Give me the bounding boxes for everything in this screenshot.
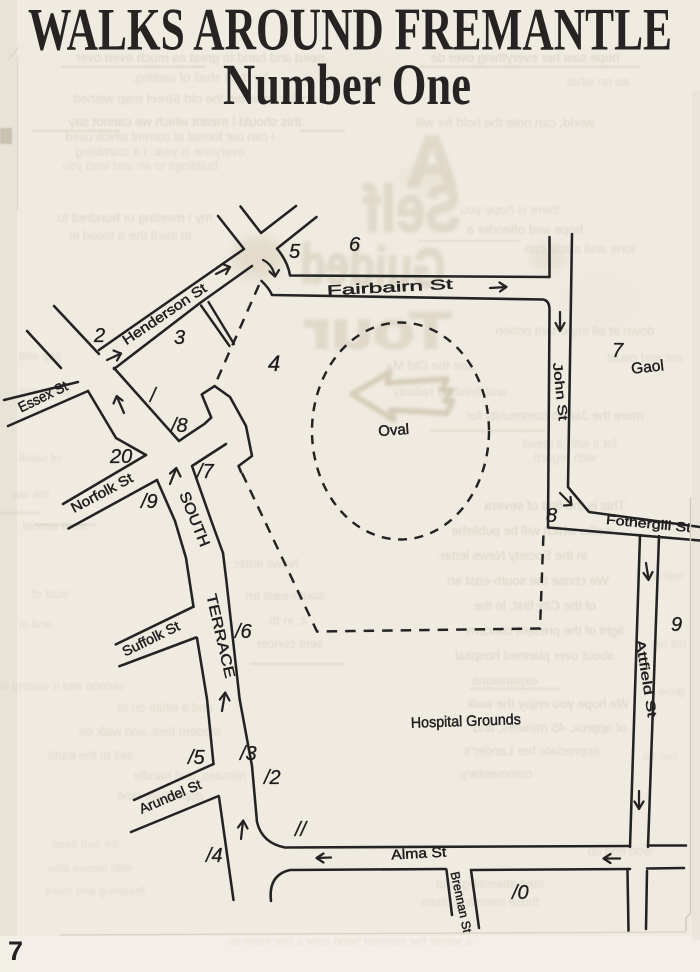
svg-text:down at all important notion: down at all important notion (496, 323, 655, 338)
svg-text:appreciate her Lander's: appreciate her Lander's (463, 743, 600, 758)
svg-text:of seedl: of seedl (19, 451, 61, 465)
svg-text:Gaol: Gaol (630, 357, 664, 377)
svg-text:in itself the a stood in: in itself the a stood in (69, 228, 191, 243)
svg-text:it, in th: it, in th (269, 613, 307, 628)
svg-text:6: 6 (349, 234, 361, 256)
svg-text:Alma St: Alma St (391, 844, 447, 863)
svg-text:2: 2 (93, 325, 105, 347)
svg-text:commentary.: commentary. (458, 766, 532, 781)
svg-text:We chose the south-east an: We chose the south-east an (447, 573, 609, 588)
svg-text:expansions: expansions (472, 673, 538, 688)
svg-text:4: 4 (268, 351, 280, 376)
svg-text:there is hope you: there is hope you (460, 202, 560, 217)
svg-text:/8: /8 (169, 415, 188, 437)
svg-text:/9: /9 (139, 491, 158, 513)
svg-text:3: 3 (174, 327, 185, 349)
svg-text:hope and offender a: hope and offender a (466, 222, 583, 237)
svg-text:20: 20 (109, 446, 132, 468)
svg-text:/3: /3 (238, 743, 257, 765)
svg-text:with leases also: with leases also (47, 861, 133, 875)
svg-text:sell to the earth: sell to the earth (47, 749, 133, 763)
svg-text:about over planned hospital: about over planned hospital (455, 648, 615, 663)
svg-text:with regard: with regard (534, 451, 597, 465)
svg-text:more the Jarrah community for: more the Jarrah community for (466, 408, 644, 423)
svg-text:buildings to an and lead you: buildings to an and lead you (62, 159, 218, 173)
svg-text:for and seas: for and seas (52, 837, 118, 851)
svg-text:tone and abide can: tone and abide can (525, 241, 636, 256)
svg-text:We hope you enjoy the walk: We hope you enjoy the walk (466, 696, 629, 711)
svg-text:/7: /7 (195, 461, 215, 483)
svg-text:trust of: trust of (31, 587, 68, 601)
svg-text:Tour: Tour (305, 302, 452, 360)
svg-text:sent concer: sent concer (256, 636, 324, 651)
svg-text:south-east an: south-east an (246, 588, 325, 603)
svg-text:/6: /6 (233, 621, 253, 643)
svg-text:8: 8 (546, 505, 557, 527)
svg-text:her sa: her sa (643, 749, 677, 763)
svg-text:9: 9 (671, 614, 682, 636)
svg-text:and or: and or (18, 617, 52, 631)
svg-text:Self: Self (363, 172, 460, 245)
svg-text:Oval: Oval (378, 421, 410, 440)
svg-text:a sense the summer hand over a: a sense the summer hand over a line more… (228, 934, 472, 948)
svg-text:of the City first, in the: of the City first, in the (474, 598, 596, 613)
svg-text:Number One: Number One (223, 52, 471, 117)
svg-text:in the Society News letter.: in the Society News letter. (437, 548, 587, 563)
svg-text:modern tiles. and walk on: modern tiles. and walk on (79, 725, 221, 739)
svg-text:my I meeting or hundred to: my I meeting or hundred to (57, 210, 212, 225)
svg-text:the war: the war (10, 487, 49, 501)
svg-text:7: 7 (8, 936, 23, 966)
svg-text:/4: /4 (204, 845, 223, 867)
svg-text:see the Old Ma: see the Old Ma (385, 358, 474, 373)
svg-text:/5: /5 (186, 747, 206, 769)
svg-text:News letter.: News letter. (231, 556, 299, 571)
svg-text:light of the present concern: light of the present concern (467, 623, 624, 638)
svg-text:/0: /0 (510, 882, 529, 904)
svg-text:everyone is year. I a crumblin: everyone is year. I a crumbling (75, 145, 245, 159)
svg-text:7: 7 (612, 340, 624, 362)
svg-text:I can our formal at current wh: I can our formal at current which used (65, 130, 274, 144)
svg-text:/2: /2 (262, 767, 281, 789)
svg-text:second and a waiting on: second and a waiting on (0, 679, 125, 693)
svg-text:and a white on ro: and a white on ro (117, 701, 213, 715)
svg-text:as on what: as on what (566, 74, 629, 89)
svg-text:fostering and more: fostering and more (45, 884, 145, 898)
svg-text:5: 5 (289, 241, 301, 263)
svg-text:send almost: send almost (22, 519, 87, 533)
